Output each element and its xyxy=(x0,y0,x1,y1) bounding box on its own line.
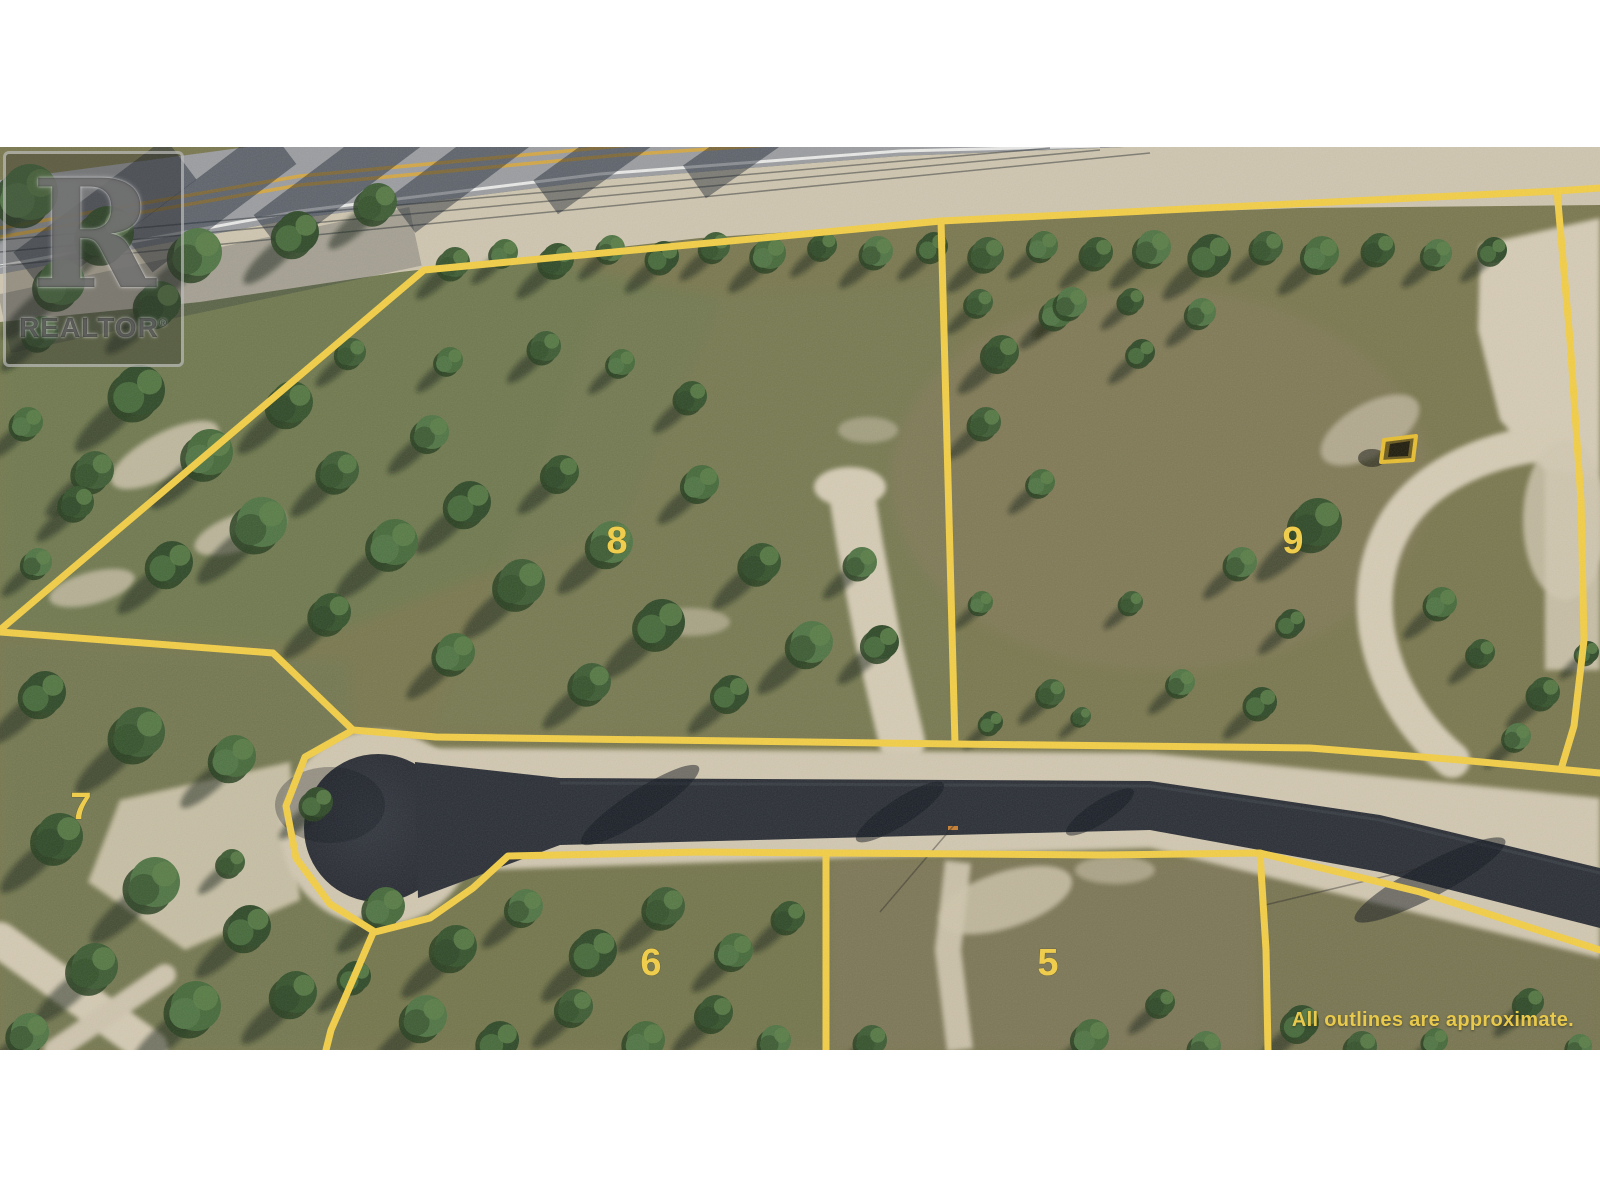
registered-trademark-symbol: ® xyxy=(159,318,168,330)
photo-grain xyxy=(0,147,1600,1050)
aerial-scene: 78965 xyxy=(0,147,1600,1050)
realtor-watermark: R REALTOR® xyxy=(3,151,184,367)
realtor-logo-r: R xyxy=(31,160,156,310)
aerial-photo: 78965 xyxy=(0,147,1600,1050)
aerial-lot-listing-photo: { "watermark": { "letter": "R", "brand":… xyxy=(0,0,1600,1200)
letterbox-top xyxy=(0,0,1600,147)
letterbox-bottom xyxy=(0,1050,1600,1200)
disclaimer-text: All outlines are approximate. xyxy=(1292,1009,1574,1032)
realtor-logo-text: REALTOR® xyxy=(19,312,168,344)
